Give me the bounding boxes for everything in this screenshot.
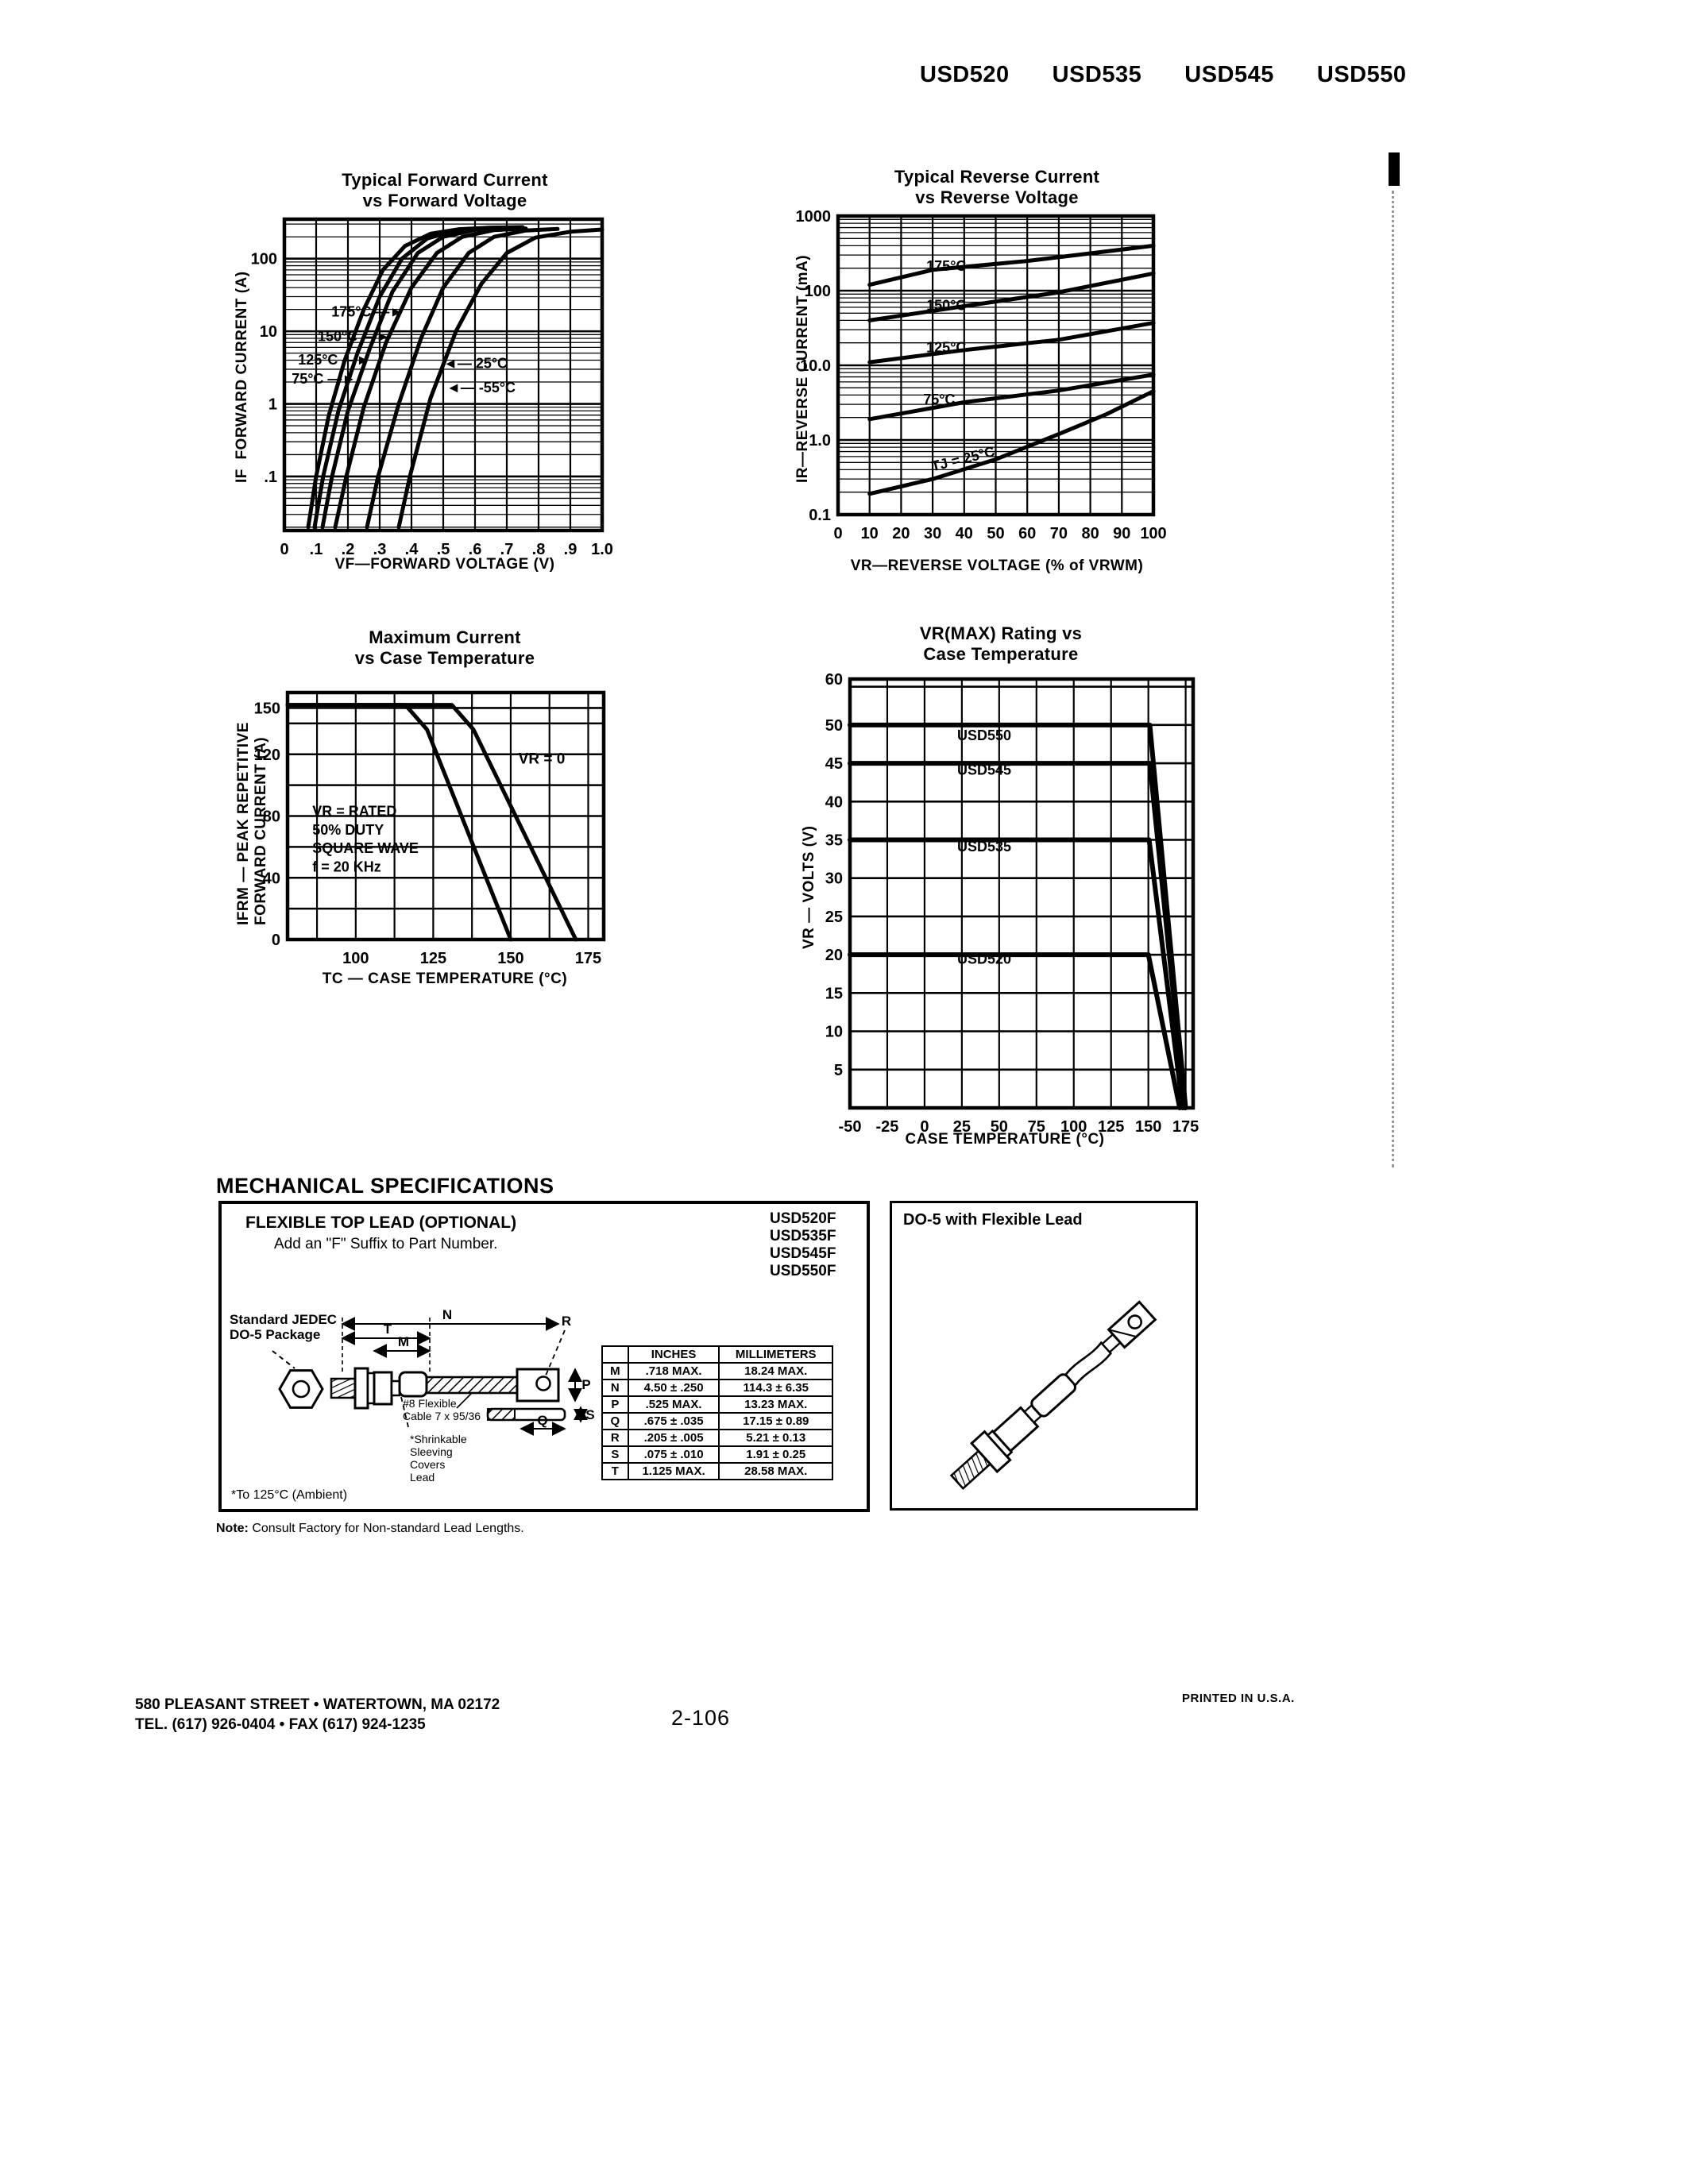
- do5-box-title: DO-5 with Flexible Lead: [903, 1211, 1083, 1229]
- svg-text:.1: .1: [264, 469, 277, 486]
- mm-cell: 13.23 MAX.: [719, 1396, 832, 1413]
- svg-text:70: 70: [1050, 525, 1068, 542]
- svg-text:150: 150: [254, 700, 280, 717]
- mm-cell: 18.24 MAX.: [719, 1363, 832, 1379]
- dim-t-label: T: [384, 1322, 392, 1337]
- part-number: USD535: [1053, 62, 1142, 87]
- dim-cell: N: [602, 1379, 628, 1396]
- factory-note: Note: Consult Factory for Non-standard L…: [216, 1522, 524, 1536]
- svg-text:125°C: 125°C: [926, 339, 966, 355]
- do5-flexible-lead-drawing: [894, 1232, 1192, 1505]
- part-number-f: USD550F: [770, 1263, 836, 1280]
- svg-text:60: 60: [825, 671, 843, 689]
- scan-bar-artifact: [1389, 152, 1400, 186]
- x-axis-label-case-temp: TC — CASE TEMPERATURE (°C): [262, 970, 628, 988]
- footer-address-line1: 580 PLEASANT STREET • WATERTOWN, MA 0217…: [135, 1695, 500, 1715]
- dim-cell: T: [602, 1463, 628, 1480]
- svg-text:30: 30: [924, 525, 941, 542]
- millimeters-col-header: MILLIMETERS: [719, 1346, 832, 1363]
- mm-cell: 114.3 ± 6.35: [719, 1379, 832, 1396]
- table-header-row: INCHES MILLIMETERS: [602, 1346, 832, 1363]
- svg-text:80: 80: [1081, 525, 1099, 542]
- scan-dotted-artifact: [1392, 191, 1394, 1167]
- mm-cell: 5.21 ± 0.13: [719, 1430, 832, 1446]
- table-row: T1.125 MAX.28.58 MAX.: [602, 1463, 832, 1480]
- dim-cell: S: [602, 1446, 628, 1463]
- svg-text:30: 30: [825, 870, 843, 888]
- flexible-lead-box: FLEXIBLE TOP LEAD (OPTIONAL) Add an "F" …: [218, 1201, 870, 1512]
- chart-title-max-current: Maximum Current vs Case Temperature: [302, 627, 588, 669]
- inches-cell: .718 MAX.: [628, 1363, 720, 1379]
- forward-current-chart: 0.1.2.3.4.5.6.7.8.91.0100101.1175°C —►15…: [222, 203, 635, 568]
- y-axis-label-reverse: IR—REVERSE CURRENT (mA): [794, 255, 812, 483]
- inches-cell: 1.125 MAX.: [628, 1463, 720, 1480]
- dim-p-label: P: [581, 1377, 590, 1392]
- svg-text:90: 90: [1113, 525, 1130, 542]
- page-header-partnumbers: USD520USD535USD545USD550: [920, 62, 1450, 88]
- svg-text:◄— 25°C: ◄— 25°C: [443, 356, 508, 372]
- shrinkable-sleeving-label: *Shrinkable Sleeving Covers Lead: [410, 1433, 467, 1484]
- note-label: Note:: [216, 1522, 249, 1535]
- dim-cell: Q: [602, 1413, 628, 1430]
- dim-cell: R: [602, 1430, 628, 1446]
- f-suffix-subtitle: Add an "F" Suffix to Part Number.: [274, 1236, 497, 1253]
- svg-text:40: 40: [825, 793, 843, 811]
- dimension-table: INCHES MILLIMETERS M.718 MAX.18.24 MAX. …: [601, 1345, 833, 1480]
- svg-text:20: 20: [892, 525, 910, 542]
- svg-text:VR = RATED: VR = RATED: [312, 804, 396, 820]
- svg-text:45: 45: [825, 755, 843, 773]
- svg-text:150°C: 150°C: [926, 297, 966, 313]
- part-number: USD550: [1317, 62, 1407, 87]
- reverse-current-chart: 0102030405060708090100100010010.01.00.11…: [786, 199, 1207, 552]
- table-row: M.718 MAX.18.24 MAX.: [602, 1363, 832, 1379]
- inches-cell: 4.50 ± .250: [628, 1379, 720, 1396]
- part-number-f: USD545F: [770, 1245, 836, 1263]
- svg-text:100: 100: [1140, 525, 1166, 542]
- inches-cell: .675 ± .035: [628, 1413, 720, 1430]
- dim-r-label: R: [562, 1314, 571, 1329]
- svg-text:1.0: 1.0: [809, 432, 831, 450]
- svg-text:40: 40: [956, 525, 973, 542]
- svg-text:100: 100: [251, 251, 277, 268]
- flexible-top-lead-title: FLEXIBLE TOP LEAD (OPTIONAL): [245, 1214, 516, 1233]
- x-axis-label-reverse: VR—REVERSE VOLTAGE (% of VRWM): [806, 558, 1188, 575]
- svg-text:50: 50: [987, 525, 1004, 542]
- svg-text:USD520: USD520: [957, 951, 1011, 967]
- svg-text:175: 175: [1172, 1118, 1199, 1136]
- svg-text:f = 20 KHz: f = 20 KHz: [312, 859, 381, 874]
- part-number: USD520: [920, 62, 1010, 87]
- svg-text:USD545: USD545: [957, 762, 1011, 778]
- svg-text:10: 10: [825, 1024, 843, 1041]
- svg-text:◄— -55°C: ◄— -55°C: [446, 380, 516, 396]
- inches-col-header: INCHES: [628, 1346, 720, 1363]
- svg-text:5: 5: [834, 1062, 843, 1079]
- svg-text:150°C —►: 150°C —►: [318, 329, 390, 345]
- svg-text:20: 20: [825, 947, 843, 964]
- svg-text:50% DUTY: 50% DUTY: [312, 822, 384, 838]
- svg-text:175°C —►: 175°C —►: [331, 303, 404, 319]
- svg-text:0: 0: [833, 525, 842, 542]
- svg-text:60: 60: [1018, 525, 1036, 542]
- svg-text:0.1: 0.1: [809, 507, 831, 524]
- svg-text:25: 25: [825, 909, 843, 926]
- svg-text:100: 100: [342, 950, 369, 967]
- part-number-f: USD535F: [770, 1228, 836, 1245]
- part-number: USD545: [1184, 62, 1274, 87]
- chart-title-vrmax: VR(MAX) Rating vs Case Temperature: [858, 623, 1144, 665]
- svg-text:USD550: USD550: [957, 727, 1011, 743]
- mm-cell: 1.91 ± 0.25: [719, 1446, 832, 1463]
- y-axis-label-volts: VR — VOLTS (V): [801, 826, 818, 949]
- svg-text:VR = 0: VR = 0: [519, 751, 566, 767]
- page-number: 2-106: [671, 1706, 730, 1731]
- svg-text:175°C: 175°C: [926, 258, 966, 274]
- flexible-cable-label: #8 Flexible Cable 7 x 95/36: [403, 1397, 481, 1422]
- svg-text:1: 1: [268, 396, 277, 414]
- jedec-package-label: Standard JEDEC DO-5 Package: [230, 1312, 337, 1342]
- printed-in-usa: PRINTED IN U.S.A.: [1182, 1692, 1295, 1705]
- dim-n-label: N: [442, 1307, 452, 1322]
- table-row: Q.675 ± .03517.15 ± 0.89: [602, 1413, 832, 1430]
- dim-s-label: S: [585, 1407, 594, 1422]
- svg-text:175: 175: [575, 950, 601, 967]
- x-axis-label-forward: VF—FORWARD VOLTAGE (V): [262, 556, 628, 573]
- inches-cell: .075 ± .010: [628, 1446, 720, 1463]
- svg-text:-50: -50: [839, 1118, 862, 1136]
- footer-address: 580 PLEASANT STREET • WATERTOWN, MA 0217…: [135, 1695, 500, 1734]
- svg-text:15: 15: [825, 985, 843, 1002]
- vrmax-rating-chart: -50-250255075100125150175605045403530252…: [786, 671, 1215, 1144]
- svg-text:10: 10: [861, 525, 879, 542]
- dim-col-header: [602, 1346, 628, 1363]
- svg-text:0: 0: [272, 932, 280, 949]
- table-row: P.525 MAX.13.23 MAX.: [602, 1396, 832, 1413]
- dim-m-label: M: [398, 1334, 409, 1349]
- svg-text:125°C —►: 125°C —►: [298, 352, 370, 368]
- table-row: N4.50 ± .250114.3 ± 6.35: [602, 1379, 832, 1396]
- datasheet-page: { "header": { "parts": ["USD520", "USD53…: [0, 0, 1688, 2184]
- inches-cell: .525 MAX.: [628, 1396, 720, 1413]
- dim-q-label: Q: [537, 1413, 547, 1428]
- svg-text:75°C: 75°C: [923, 392, 955, 407]
- x-axis-label-vrmax: CASE TEMPERATURE (°C): [862, 1131, 1148, 1148]
- svg-text:50: 50: [825, 717, 843, 735]
- note-text: Consult Factory for Non-standard Lead Le…: [249, 1522, 524, 1535]
- svg-text:1000: 1000: [796, 208, 832, 226]
- dim-cell: P: [602, 1396, 628, 1413]
- do5-flexible-lead-box: DO-5 with Flexible Lead: [890, 1201, 1198, 1511]
- svg-text:35: 35: [825, 832, 843, 850]
- inches-cell: .205 ± .005: [628, 1430, 720, 1446]
- max-current-chart: 10012515017504080120150VR = 0VR = RATED5…: [222, 675, 635, 997]
- mm-cell: 17.15 ± 0.89: [719, 1413, 832, 1430]
- flexible-part-numbers: USD520F USD535F USD545F USD550F: [770, 1210, 836, 1280]
- svg-text:10: 10: [260, 323, 277, 341]
- mm-cell: 28.58 MAX.: [719, 1463, 832, 1480]
- svg-text:SQUARE WAVE: SQUARE WAVE: [312, 840, 419, 856]
- svg-text:USD535: USD535: [957, 839, 1011, 855]
- dim-cell: M: [602, 1363, 628, 1379]
- table-row: R.205 ± .0055.21 ± 0.13: [602, 1430, 832, 1446]
- mechanical-specs-heading: MECHANICAL SPECIFICATIONS: [216, 1174, 554, 1198]
- part-number-f: USD520F: [770, 1210, 836, 1228]
- y-axis-label-forward: IF FORWARD CURRENT (A): [234, 271, 251, 483]
- y-axis-label-peak-current: IFRM — PEAK REPETITIVE FORWARD CURRENT (…: [235, 722, 270, 925]
- svg-text:125: 125: [420, 950, 446, 967]
- svg-text:75°C —►: 75°C —►: [292, 371, 356, 387]
- footer-address-line2: TEL. (617) 926-0404 • FAX (617) 924-1235: [135, 1715, 500, 1734]
- svg-text:150: 150: [497, 950, 523, 967]
- table-row: S.075 ± .0101.91 ± 0.25: [602, 1446, 832, 1463]
- ambient-note: *To 125°C (Ambient): [231, 1488, 347, 1503]
